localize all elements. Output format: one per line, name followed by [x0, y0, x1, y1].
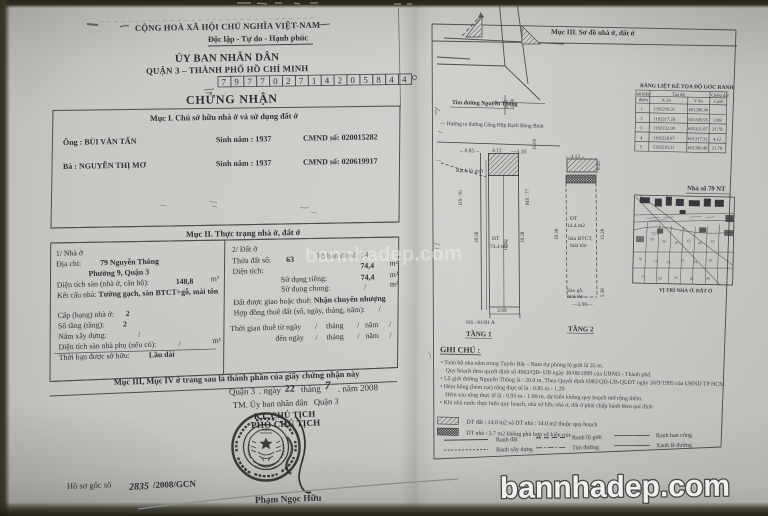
svg-text:bannhadep.com: bannhadep.com — [500, 470, 730, 505]
